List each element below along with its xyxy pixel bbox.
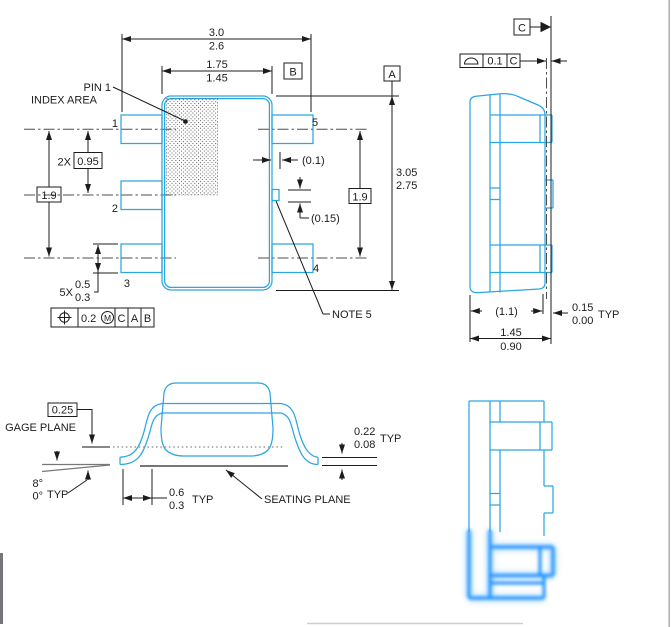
dim-lead-thickness: 0.22 0.08 TYP <box>322 426 401 480</box>
datasheet-package-drawing-page: 1 2 3 4 5 PIN 1 INDEX AREA 3.0 2.6 1.75 … <box>0 0 671 627</box>
front-view: 0.25 GAGE PLANE 8° 0° TYP 0.6 0.3 TYP <box>5 383 401 512</box>
dim-length-upper: 3.05 <box>396 167 417 179</box>
seating-plane-callout: SEATING PLANE <box>226 470 351 506</box>
bottom-right-view <box>469 401 553 598</box>
pin1-label-line1: PIN 1 <box>83 82 111 94</box>
dim-gap1-value: (0.1) <box>302 155 325 167</box>
datum-b-label: B <box>289 67 296 79</box>
dim-width-upper: 1.45 <box>500 327 521 339</box>
side-body-details <box>490 94 500 292</box>
foot-typ: TYP <box>192 494 213 506</box>
side-body-outline <box>470 94 545 293</box>
pin1-index-area-stipple <box>167 99 218 196</box>
dim-side-lower: (1.1) 0.15 0.00 TYP 1.45 0.90 <box>470 294 619 353</box>
bottom-right-blurred-lines <box>469 530 553 598</box>
thick-upper: 0.22 <box>354 426 375 438</box>
datum-a-label: A <box>388 69 396 81</box>
dim-gap-015: (0.15) <box>288 177 340 225</box>
thick-lower: 0.08 <box>354 439 375 451</box>
gage-value: 0.25 <box>52 405 73 417</box>
dim-body-length: A 3.05 2.75 <box>276 66 417 291</box>
note5-label: NOTE 5 <box>332 309 372 321</box>
fcf-tolerance: 0.2 <box>81 313 96 325</box>
fcf-datum-2: A <box>131 313 139 325</box>
pin-number-4: 4 <box>313 263 319 275</box>
gage-label: GAGE PLANE <box>5 422 76 434</box>
seating-label: SEATING PLANE <box>264 494 351 506</box>
dim-standoff-typ: TYP <box>598 309 619 321</box>
page-border-left-partial <box>0 553 3 624</box>
dim-width-lower: 0.90 <box>500 341 521 353</box>
dim-foot-length: 0.6 0.3 TYP <box>123 469 213 512</box>
leader-dot <box>183 119 188 124</box>
dim-gap2-value: (0.15) <box>311 213 340 225</box>
dim-lead-width: 5X 0.5 0.3 <box>60 244 118 304</box>
dim-body-upper: 1.75 <box>206 59 227 71</box>
package-drawing: 1 2 3 4 5 PIN 1 INDEX AREA 3.0 2.6 1.75 … <box>0 0 671 627</box>
dim-lead-prefix: 5X <box>60 287 74 299</box>
profile-surface-symbol-icon <box>465 58 478 64</box>
note5-feature <box>272 190 279 201</box>
front-body-and-leads <box>120 383 318 465</box>
angle-typ: TYP <box>47 489 68 501</box>
profile-tol-datum: C <box>510 56 518 68</box>
position-tolerance-frame: 0.2 M C A B <box>51 308 154 327</box>
angle-slant-line <box>42 465 110 472</box>
dim-span-right: 1.9 <box>349 131 371 257</box>
dim-span-left: 1.9 <box>37 131 61 257</box>
dim-span-left-value: 1.9 <box>41 190 56 202</box>
dim-standoff-upper: 0.15 <box>572 302 593 314</box>
angle-lower: 0° <box>32 491 43 503</box>
dim-ref-11: (1.1) <box>495 306 518 318</box>
dim-span-right-value: 1.9 <box>352 192 367 204</box>
side-view: C 0.1 C (1.1) 0.15 0.00 TYP 1.45 <box>460 16 619 353</box>
datum-c-callout: C <box>514 19 551 35</box>
dim-gap-01: (0.1) <box>253 152 325 169</box>
dim-lead-upper: 0.5 <box>75 279 90 291</box>
top-view: 1 2 3 4 5 PIN 1 INDEX AREA 3.0 2.6 1.75 … <box>24 27 417 327</box>
dim-pitch-value: 0.95 <box>77 156 98 168</box>
bottom-right-crisp-lines <box>469 401 553 536</box>
dim-overall-lower: 2.6 <box>209 41 224 53</box>
pin-number-1: 1 <box>112 118 118 130</box>
pin1-label-line2: INDEX AREA <box>31 95 98 107</box>
angle-upper: 8° <box>32 478 43 490</box>
fcf-datum-3: B <box>144 313 151 325</box>
foot-lower: 0.3 <box>169 500 184 512</box>
dim-pin-pitch: 0.95 2X <box>58 131 102 193</box>
datum-triangle-icon <box>541 22 552 32</box>
dim-body-lower: 1.45 <box>206 73 227 85</box>
dim-body-width: 1.75 1.45 B <box>162 59 302 94</box>
dim-pitch-prefix: 2X <box>58 157 72 169</box>
position-symbol-icon <box>58 311 72 325</box>
fcf-modifier: M <box>104 313 111 323</box>
dim-standoff-lower: 0.00 <box>572 315 593 327</box>
thick-typ: TYP <box>380 433 401 445</box>
foot-upper: 0.6 <box>169 487 184 499</box>
profile-tol-value: 0.1 <box>487 56 502 68</box>
dim-lead-lower: 0.3 <box>75 292 90 304</box>
fcf-datum-1: C <box>118 313 126 325</box>
dim-length-lower: 2.75 <box>396 180 417 192</box>
datum-c-label: C <box>518 23 526 35</box>
pin-number-5: 5 <box>312 117 318 129</box>
lead-angle-callout: 8° 0° TYP <box>32 451 88 503</box>
dim-overall-upper: 3.0 <box>209 27 224 39</box>
pin-number-2: 2 <box>112 203 118 215</box>
gage-plane-callout: 0.25 GAGE PLANE <box>5 403 92 444</box>
pin-number-3: 3 <box>124 278 130 290</box>
